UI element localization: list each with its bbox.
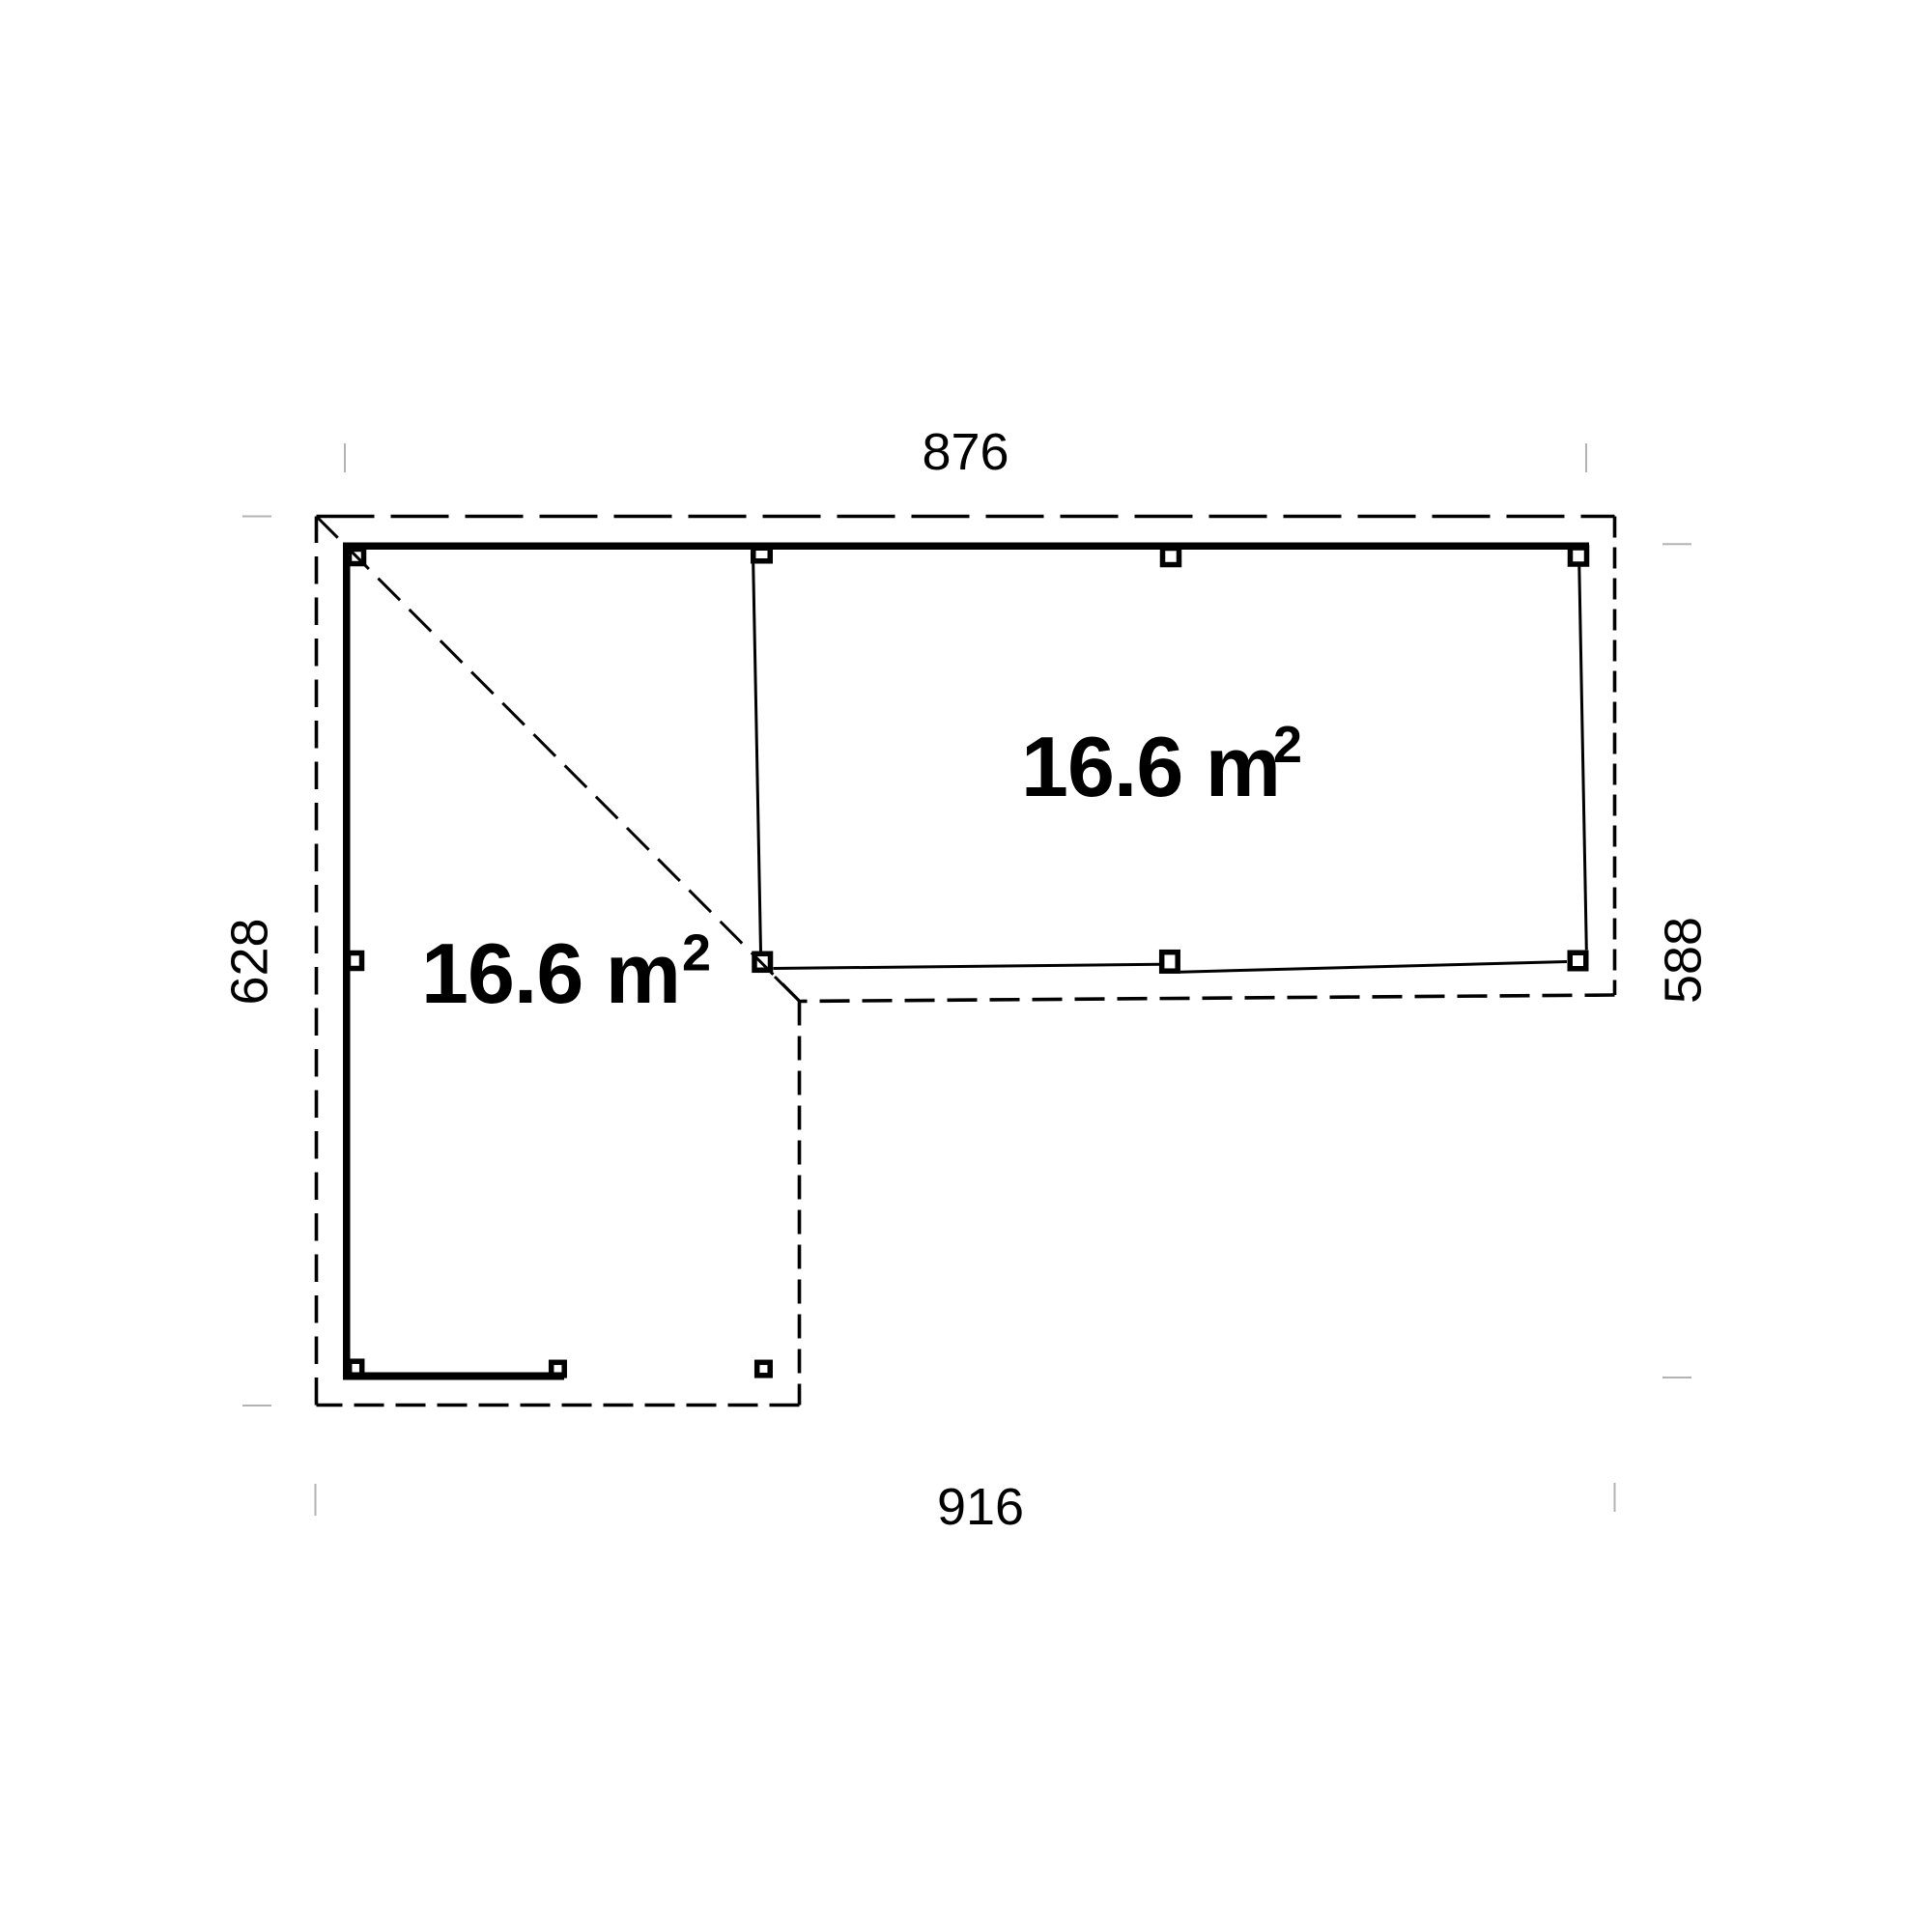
- svg-text:876: 876: [922, 423, 1009, 481]
- svg-text:16.6 m: 16.6 m: [421, 925, 680, 1021]
- svg-text:916: 916: [937, 1478, 1024, 1536]
- svg-text:628: 628: [221, 918, 279, 1005]
- svg-text:2: 2: [682, 924, 711, 982]
- svg-text:2: 2: [1273, 716, 1302, 774]
- svg-text:16.6 m: 16.6 m: [1021, 719, 1280, 814]
- svg-text:588: 588: [1655, 917, 1713, 1004]
